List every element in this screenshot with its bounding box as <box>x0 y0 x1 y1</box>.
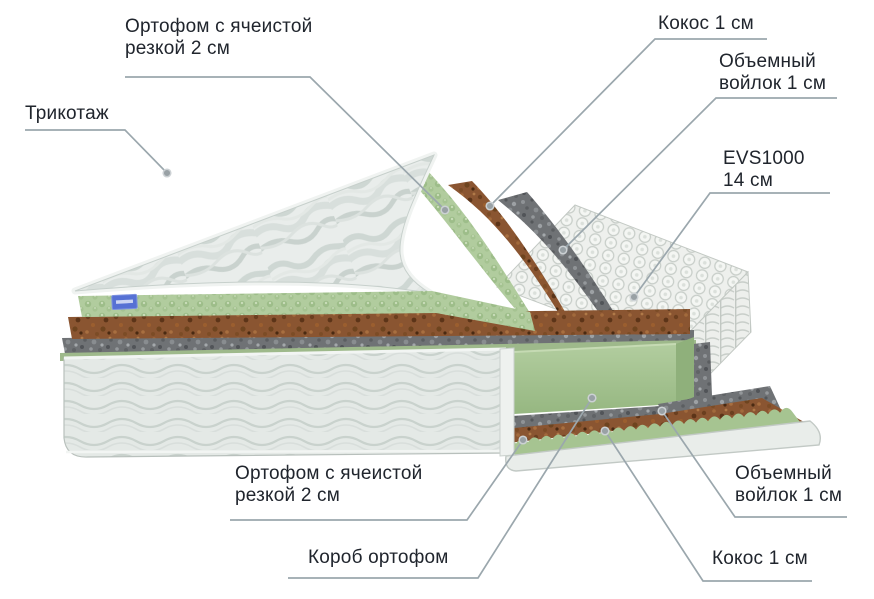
brand-tag <box>112 294 138 309</box>
quilt-top-layer <box>75 155 434 293</box>
label-ortofoam-top: Ортофом с ячеистой резкой 2 см <box>125 16 312 59</box>
shell-cut-edge <box>500 348 514 456</box>
label-voilok-bottom: Объемный войлок 1 см <box>735 463 842 506</box>
cutaway-assembly <box>500 337 820 471</box>
label-evs1000: EVS1000 14 см <box>723 148 805 191</box>
leader-trikotazh <box>25 130 167 173</box>
mattress-body <box>64 349 506 457</box>
mattress-layers-diagram: Ортофом с ячеистой резкой 2 см Трикотаж … <box>0 0 874 599</box>
label-kokos-bottom: Кокос 1 см <box>712 548 808 570</box>
label-korob-ortofoam: Короб ортофом <box>308 547 449 569</box>
label-voilok-top: Объемный войлок 1 см <box>719 51 826 94</box>
label-ortofoam-bottom: Ортофом с ячеистой резкой 2 см <box>235 463 422 506</box>
label-trikotazh: Трикотаж <box>25 103 109 125</box>
label-kokos-top: Кокос 1 см <box>658 13 754 35</box>
